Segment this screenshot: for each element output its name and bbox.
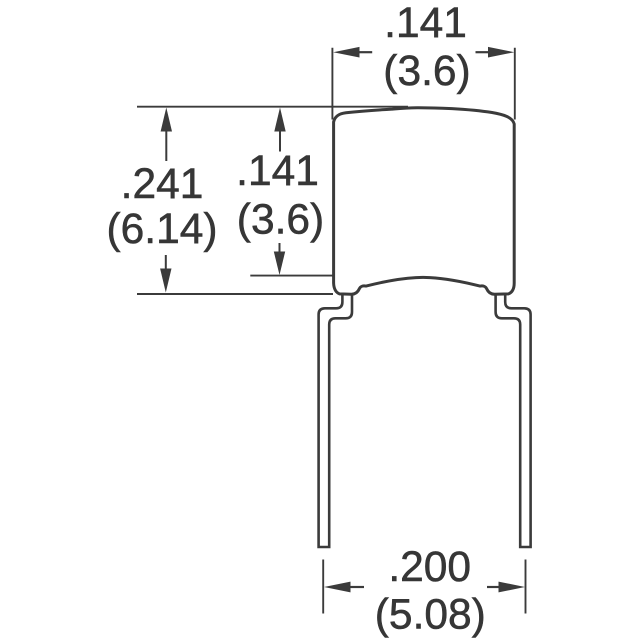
svg-text:.141: .141 — [236, 148, 319, 195]
svg-text:(6.14): (6.14) — [106, 206, 217, 253]
svg-text:.241: .241 — [121, 161, 204, 208]
svg-text:(3.6): (3.6) — [237, 197, 324, 244]
svg-text:(3.6): (3.6) — [383, 48, 470, 95]
svg-text:.200: .200 — [388, 544, 471, 591]
svg-text:(5.08): (5.08) — [375, 592, 486, 639]
svg-text:.141: .141 — [384, 0, 467, 47]
